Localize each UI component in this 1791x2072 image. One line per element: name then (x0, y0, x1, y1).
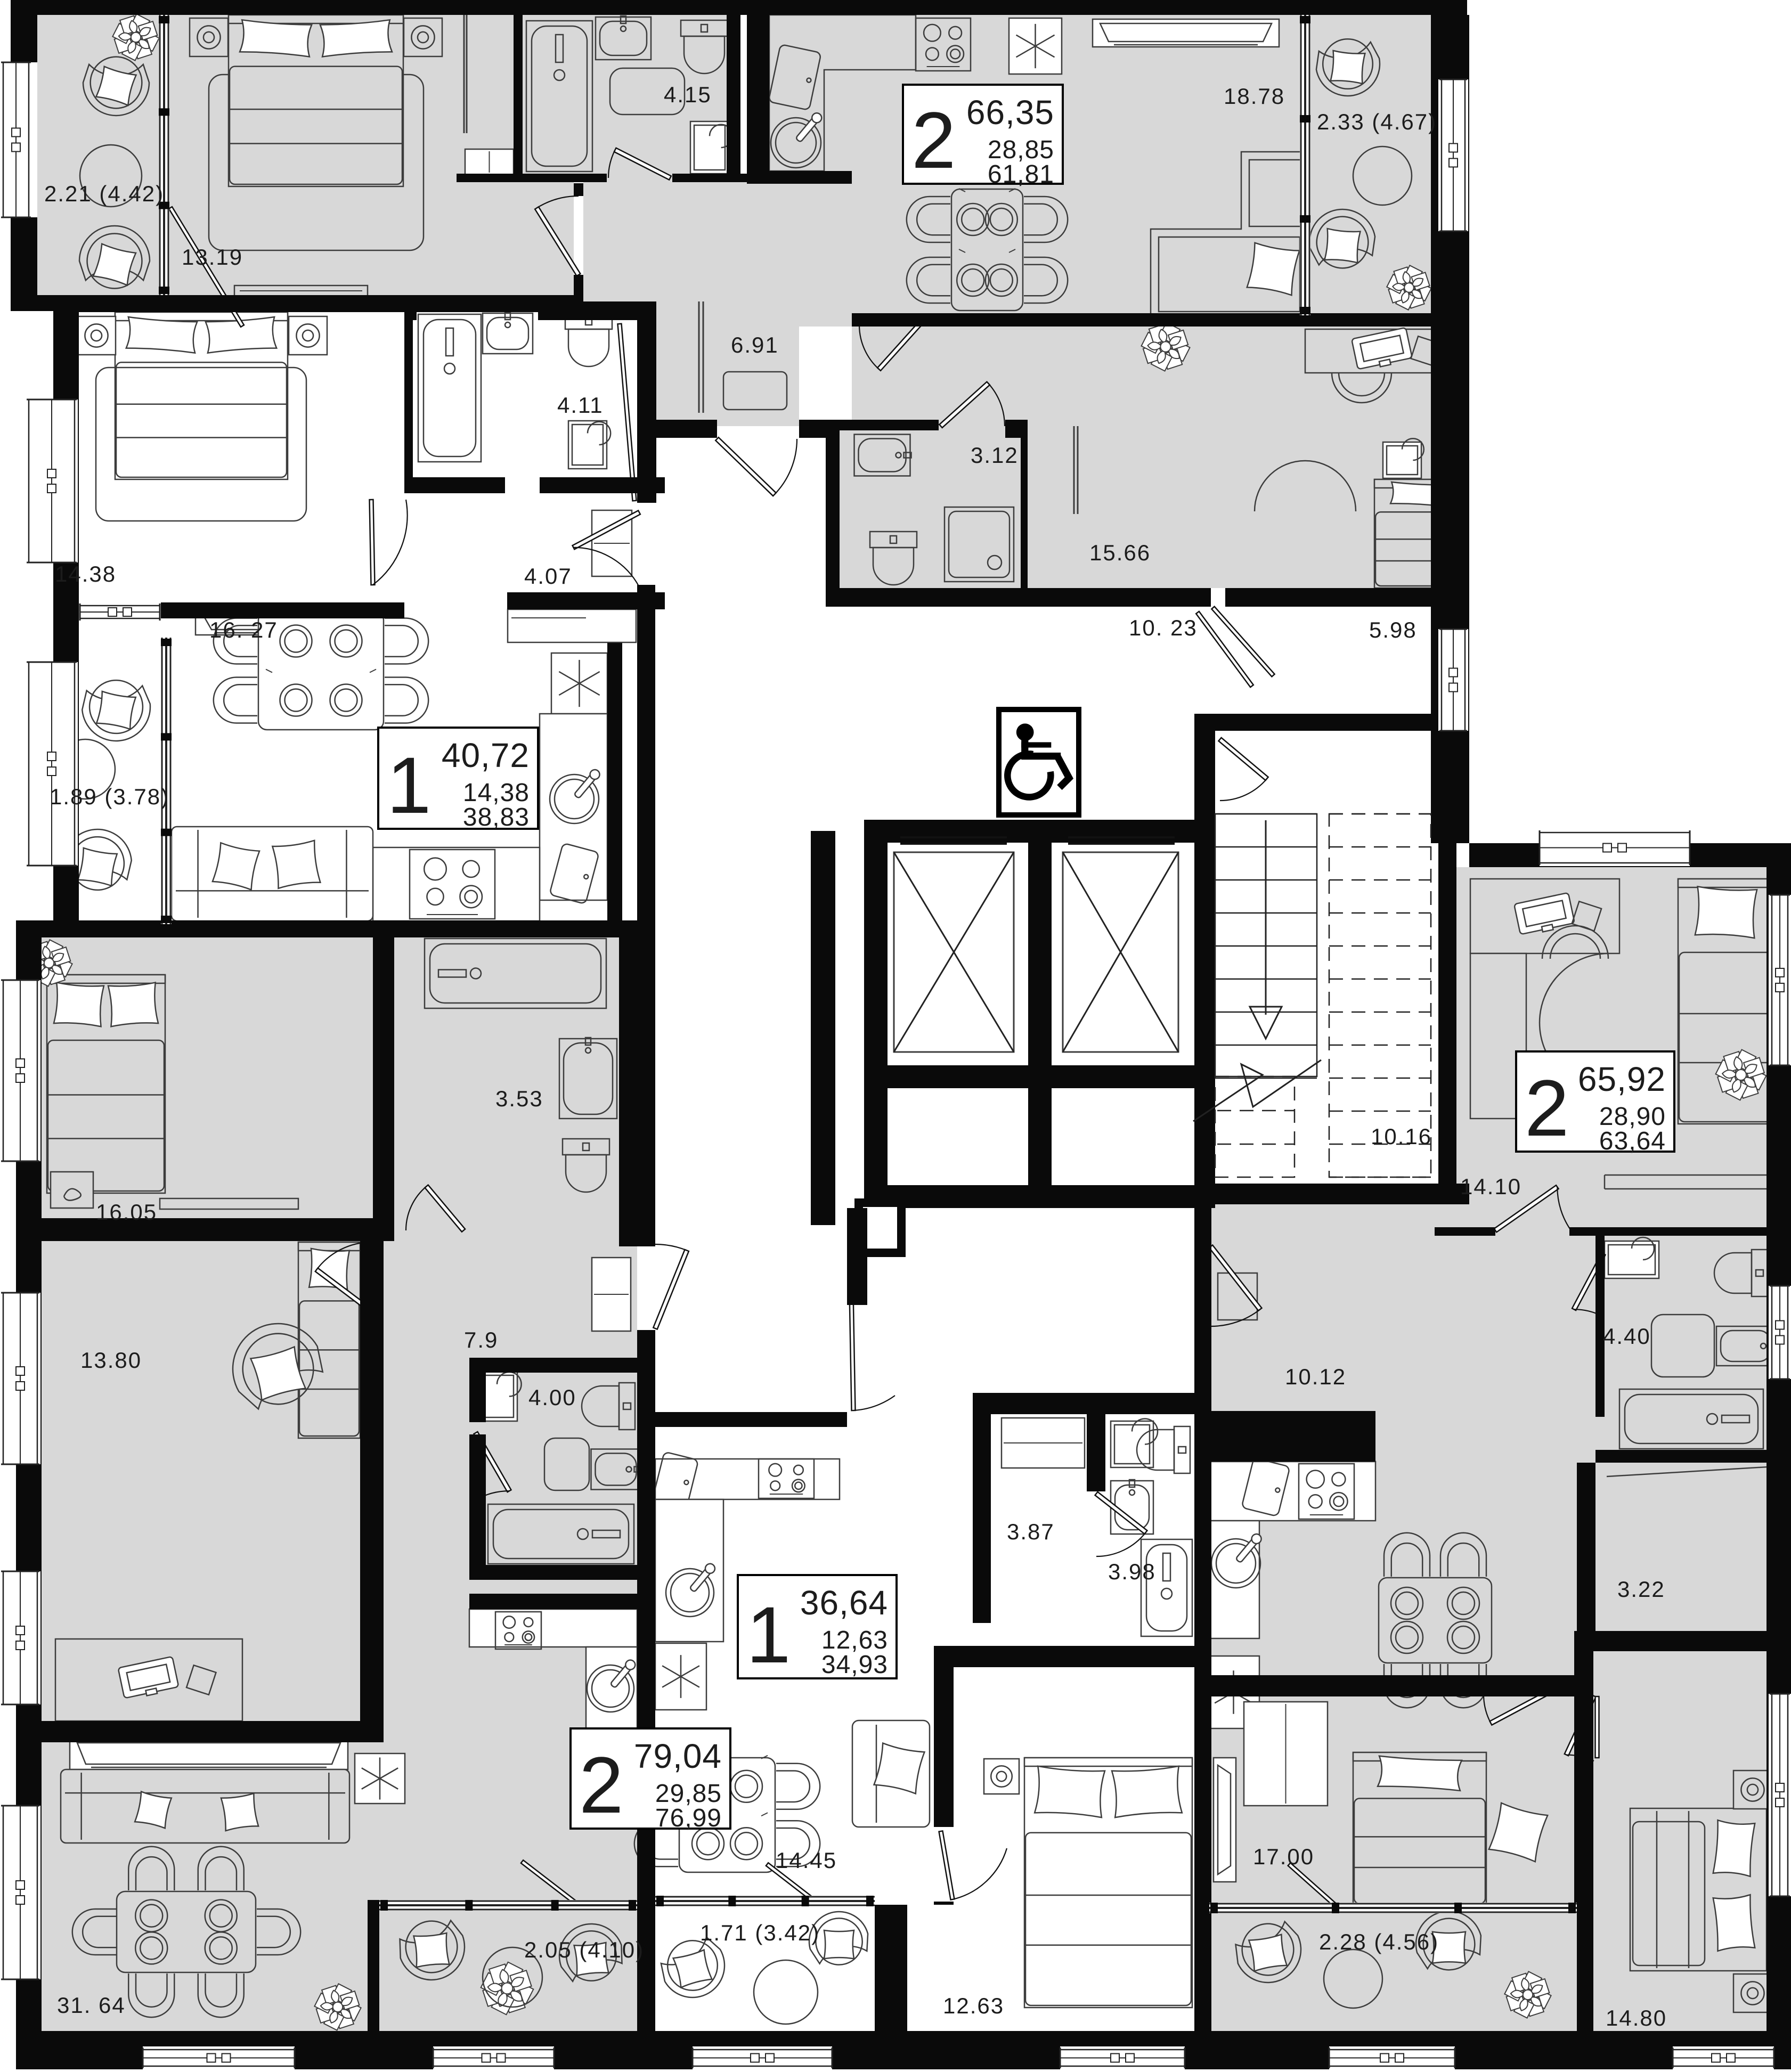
svg-text:1: 1 (387, 740, 431, 830)
svg-text:16.05: 16.05 (96, 1200, 157, 1225)
svg-text:79,04: 79,04 (634, 1737, 722, 1775)
svg-text:2: 2 (579, 1740, 623, 1830)
svg-text:13.19: 13.19 (182, 244, 243, 270)
svg-text:65,92: 65,92 (1578, 1060, 1666, 1098)
svg-text:76,99: 76,99 (655, 1804, 722, 1832)
svg-text:14.10: 14.10 (1460, 1174, 1521, 1199)
svg-text:4.07: 4.07 (524, 564, 572, 589)
svg-text:7.9: 7.9 (464, 1327, 498, 1352)
svg-text:12.63: 12.63 (943, 1993, 1004, 2018)
svg-text:17.00: 17.00 (1253, 1844, 1314, 1869)
svg-text:1: 1 (746, 1590, 791, 1679)
svg-text:3.53: 3.53 (495, 1086, 543, 1111)
svg-text:4.11: 4.11 (557, 393, 604, 418)
svg-text:16. 27: 16. 27 (209, 617, 278, 642)
svg-text:6.91: 6.91 (731, 332, 779, 357)
svg-text:3.22: 3.22 (1617, 1577, 1665, 1602)
svg-text:4.00: 4.00 (528, 1385, 576, 1410)
svg-text:2.05 (4.10): 2.05 (4.10) (524, 1937, 644, 1962)
svg-text:2: 2 (1525, 1063, 1569, 1153)
svg-text:14.45: 14.45 (776, 1848, 837, 1873)
svg-text:61,81: 61,81 (988, 160, 1054, 189)
svg-text:3.87: 3.87 (1007, 1519, 1055, 1544)
svg-text:4.15: 4.15 (664, 82, 712, 107)
svg-text:3.98: 3.98 (1108, 1559, 1156, 1584)
svg-text:1.89 (3.78): 1.89 (3.78) (50, 784, 169, 809)
svg-text:5.98: 5.98 (1369, 617, 1417, 642)
svg-text:31. 64: 31. 64 (57, 1993, 126, 2018)
svg-text:18.78: 18.78 (1224, 84, 1285, 109)
svg-text:2.33 (4.67): 2.33 (4.67) (1317, 109, 1437, 134)
svg-text:2.21 (4.42): 2.21 (4.42) (44, 181, 164, 206)
svg-text:10.16: 10.16 (1371, 1124, 1432, 1149)
svg-text:3.12: 3.12 (971, 443, 1019, 468)
svg-text:10. 23: 10. 23 (1129, 615, 1198, 640)
svg-text:10.12: 10.12 (1285, 1364, 1346, 1389)
svg-text:40,72: 40,72 (442, 736, 530, 774)
svg-text:66,35: 66,35 (966, 93, 1054, 132)
svg-text:34,93: 34,93 (821, 1651, 888, 1679)
svg-text:63,64: 63,64 (1599, 1127, 1666, 1155)
svg-text:2.28 (4.56): 2.28 (4.56) (1319, 1929, 1439, 1954)
svg-text:14.80: 14.80 (1606, 2005, 1667, 2030)
svg-text:1.71 (3.42): 1.71 (3.42) (700, 1920, 820, 1945)
svg-text:2: 2 (911, 95, 956, 185)
svg-text:13.80: 13.80 (80, 1348, 142, 1373)
svg-text:38,83: 38,83 (463, 803, 530, 831)
svg-text:14.38: 14.38 (55, 561, 116, 586)
svg-text:36,64: 36,64 (800, 1584, 888, 1622)
svg-text:15.66: 15.66 (1089, 540, 1151, 565)
svg-text:4.40: 4.40 (1603, 1324, 1651, 1349)
